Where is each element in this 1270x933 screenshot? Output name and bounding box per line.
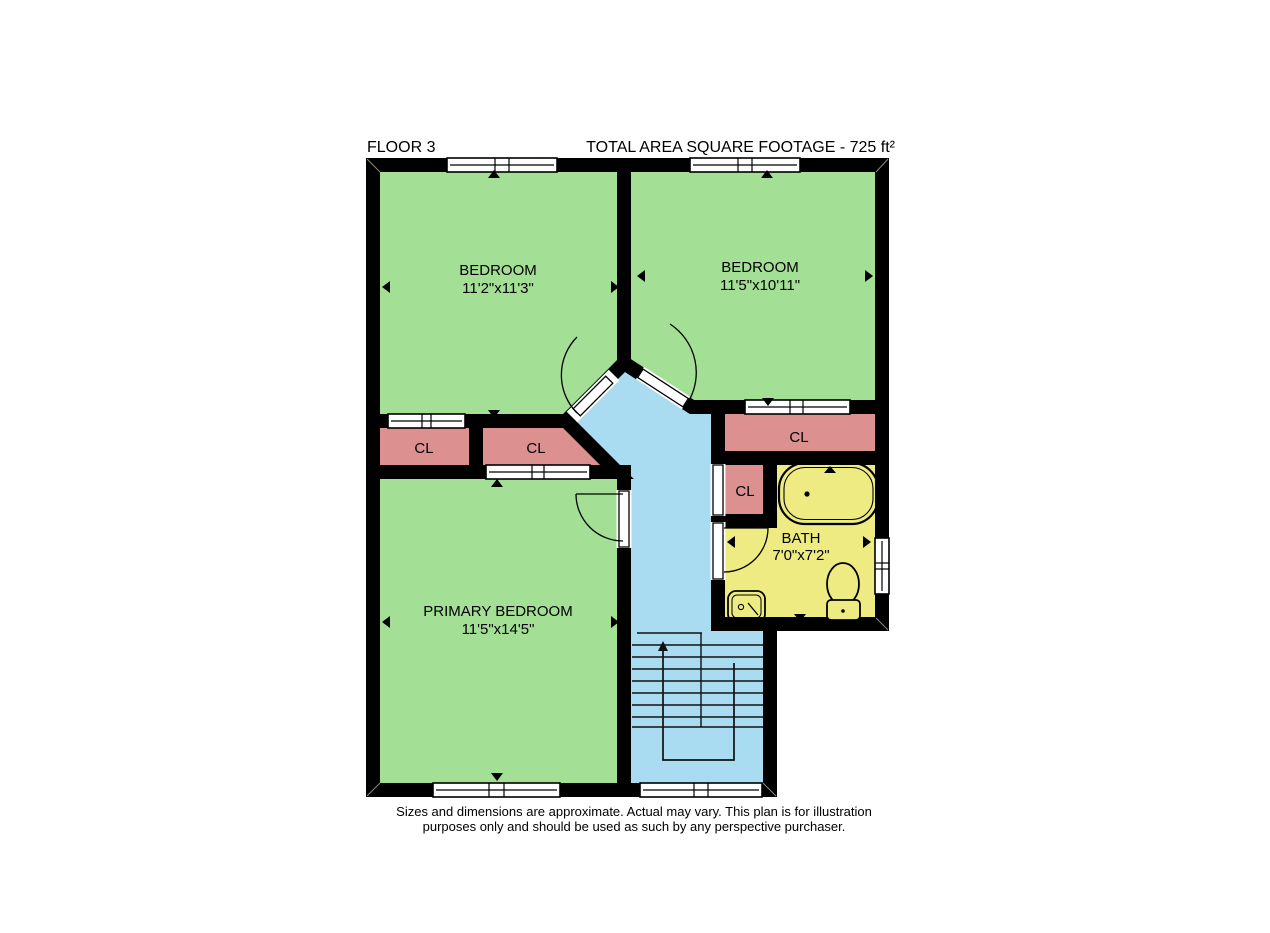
floor-title: FLOOR 3 — [367, 139, 436, 156]
window-stair-bottom — [640, 783, 762, 797]
bedroom-left-dims: 11'2"x11'3" — [462, 280, 534, 297]
closet-door-mid — [486, 465, 590, 479]
rooms — [373, 165, 882, 790]
primary-bedroom-name: PRIMARY BEDROOM — [423, 603, 572, 620]
bedroom-right-dims: 11'5"x10'11" — [720, 277, 800, 294]
disclaimer-line-2: purposes only and should be used as such… — [423, 819, 846, 834]
primary-bedroom-dims: 11'5"x14'5" — [462, 621, 535, 638]
closet-right-label: CL — [789, 429, 808, 446]
bath-dims: 7'0"x7'2" — [772, 547, 829, 564]
bedroom-left-name: BEDROOM — [459, 262, 537, 279]
window-bedroom-left-top — [447, 158, 557, 172]
closet-left-label: CL — [414, 440, 433, 457]
closet-bath-opening — [713, 464, 723, 516]
closet-mid-label: CL — [526, 440, 545, 457]
floor-plan-svg: FLOOR 3 TOTAL AREA SQUARE FOOTAGE - 725 … — [0, 0, 1270, 933]
floor-plan-page: FLOOR 3 TOTAL AREA SQUARE FOOTAGE - 725 … — [0, 0, 1270, 933]
closet-door-right — [745, 400, 850, 414]
tub-drain — [804, 491, 809, 496]
disclaimer-line-1: Sizes and dimensions are approximate. Ac… — [396, 804, 872, 819]
window-primary-bottom — [433, 783, 560, 797]
window-bath-right — [875, 538, 889, 594]
window-bedroom-right-top — [690, 158, 800, 172]
bedroom-right-name: BEDROOM — [721, 259, 799, 276]
closet-bath-label: CL — [735, 483, 754, 500]
total-area-title: TOTAL AREA SQUARE FOOTAGE - 725 ft² — [586, 139, 895, 156]
bath-name: BATH — [782, 530, 821, 547]
closet-door-left — [388, 414, 465, 428]
